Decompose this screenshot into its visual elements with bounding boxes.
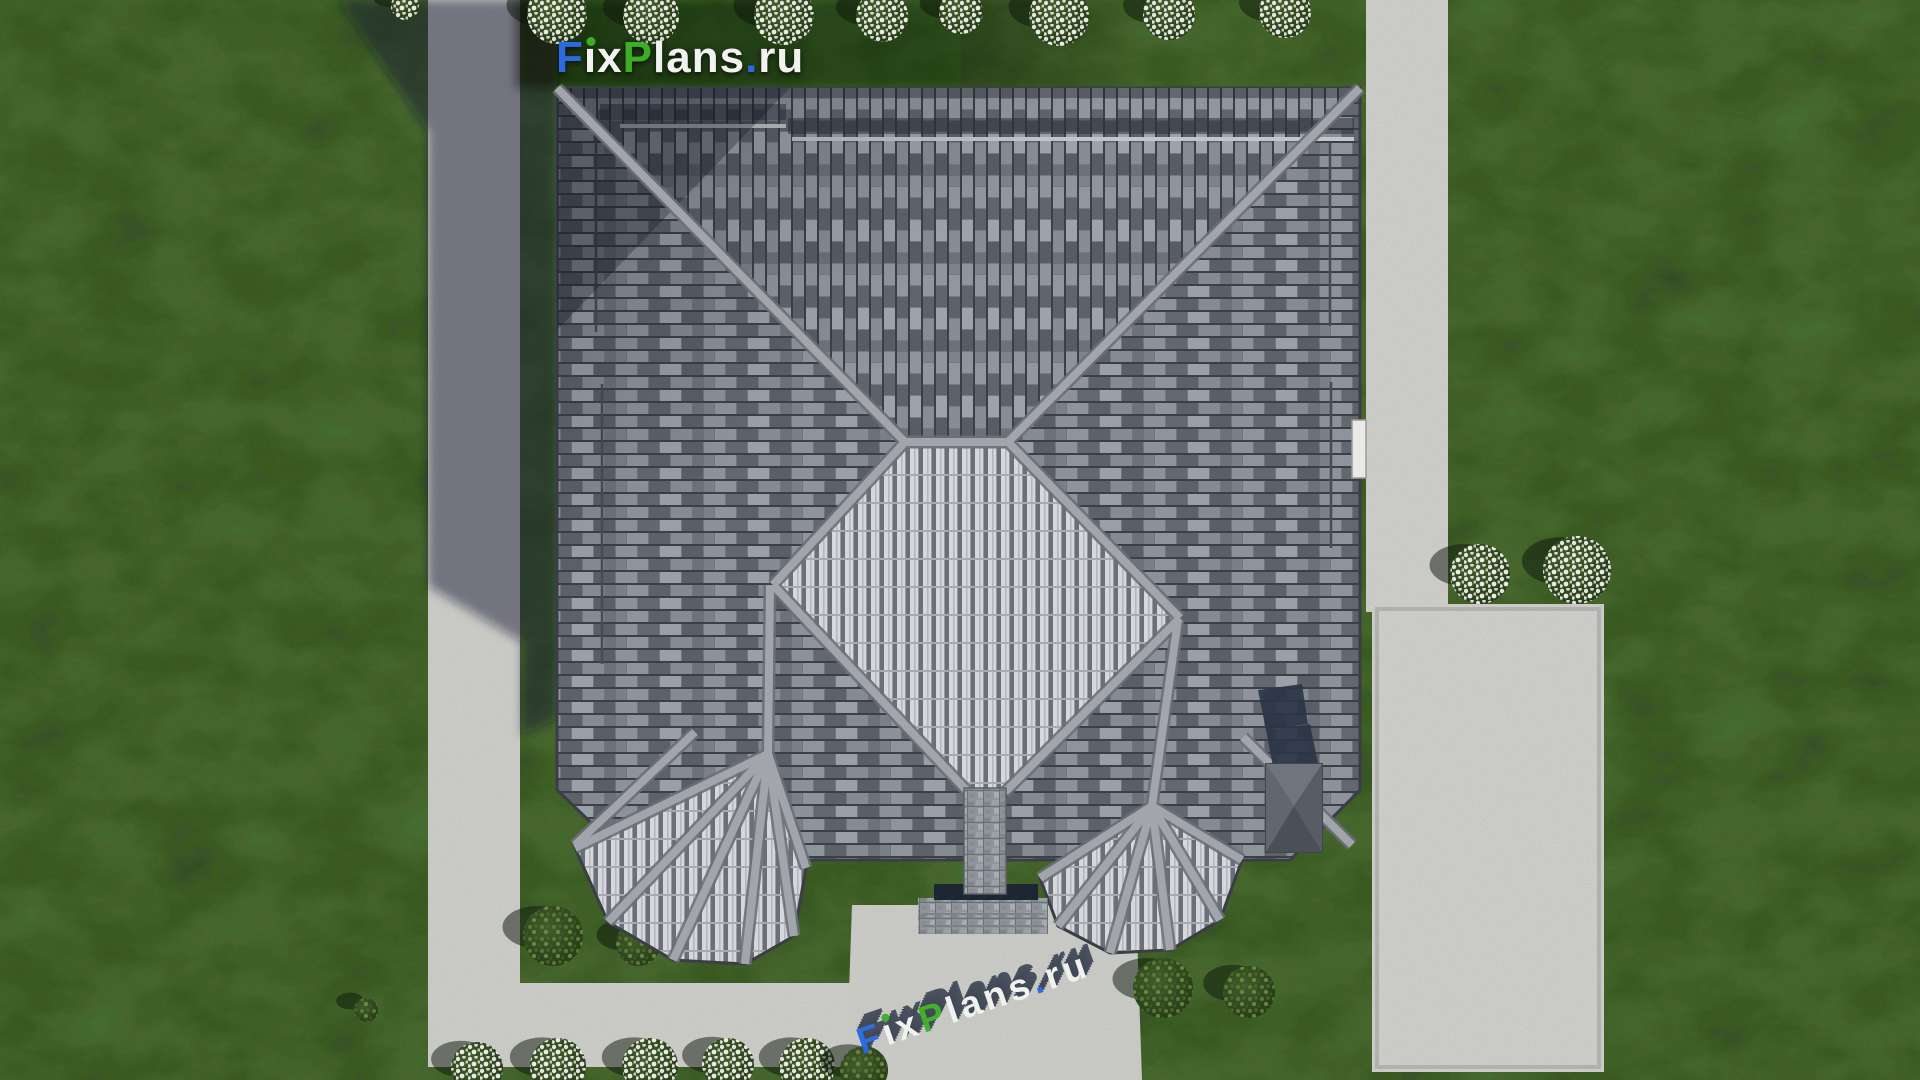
stone-column — [964, 788, 1006, 894]
shrub-foliage — [523, 906, 583, 966]
site-render-canvas — [0, 0, 1920, 1080]
i-dot — [586, 37, 595, 46]
letter-.: . — [745, 36, 758, 80]
shrub-foliage — [1133, 958, 1193, 1018]
fixplans-logo: FıxPlans.ru — [556, 36, 804, 80]
shrub-foliage — [1543, 536, 1611, 604]
letter-s: s — [720, 36, 745, 80]
letter-l: l — [653, 36, 666, 80]
letter-a: a — [666, 36, 691, 80]
letter-r: r — [758, 36, 776, 80]
letter-u: u — [776, 36, 804, 80]
roof-edge-hatch — [1352, 420, 1366, 478]
letter-i: ı — [584, 36, 597, 80]
letter-x: x — [597, 36, 622, 80]
house-roof — [557, 88, 1366, 964]
shrub-foliage — [354, 998, 378, 1022]
shrub-foliage — [1223, 966, 1275, 1018]
letter-n: n — [692, 36, 720, 80]
letter-F: F — [556, 36, 584, 80]
right-path — [1366, 0, 1448, 612]
i-dot — [880, 1013, 890, 1023]
letter-P: P — [623, 36, 653, 80]
shrub-foliage — [1450, 544, 1510, 604]
aerial-house-roof-render: FıxPlans.ru FıxPlans.ru — [0, 0, 1920, 1080]
right-patio-pad — [1372, 604, 1604, 1072]
